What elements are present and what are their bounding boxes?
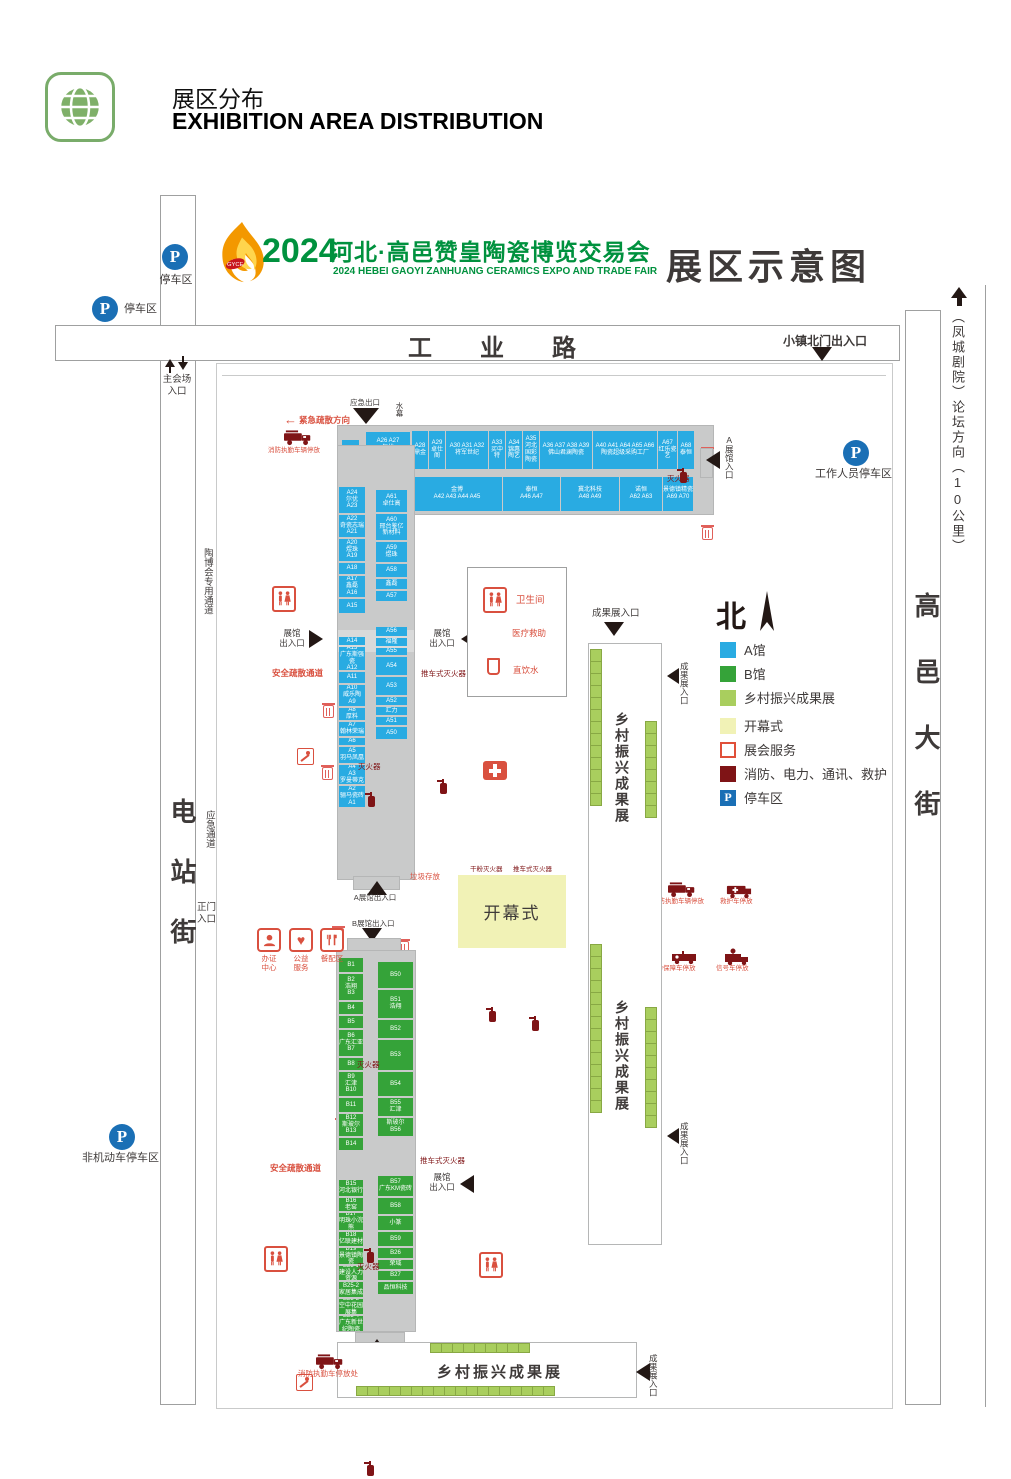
hall-a-booth: A60 邢台鉴亿 新材料 (376, 514, 407, 540)
hall-a-booth: A24 尔优 A23 (339, 487, 365, 513)
evacuation-route-label: 安全疏散通道 (272, 668, 323, 678)
hall-a-left-column: A24 尔优 A23A22 奇瓷志瑞 A21A20 煜珠 A19A18A17 鑫… (339, 487, 365, 807)
trash-storage-label: 垃圾存放 (410, 872, 440, 881)
two-way-arrows-icon (165, 356, 188, 373)
legend-label: 消防、电力、通讯、救护 (744, 764, 887, 783)
road-intersection-patch (161, 327, 194, 359)
achievement-cells-bottom-bottom (357, 1386, 555, 1396)
hall-b-booth: B4 (339, 1002, 363, 1014)
hall-exit-arrow-icon (309, 630, 326, 648)
hall-a-booth: A54 (376, 657, 407, 675)
toilet-icon (479, 1252, 503, 1278)
trash-icon (702, 527, 713, 540)
hall-a-top-row2: 金博 A42 A43 A44 A45泰恒 A46 A47冀北科技 A48 A49… (412, 477, 693, 511)
extinguisher-label: 灭火器 (357, 1060, 380, 1069)
hall-a-booth: A67 红乐瓷艺 (658, 431, 677, 469)
street-label-dianzhan: 电站街 (164, 798, 201, 978)
hall-b-booth: 品恒科技 (378, 1282, 413, 1294)
hall-a-gate-label: A展馆出入口 (343, 893, 407, 902)
signal-truck-icon (724, 948, 750, 965)
achievement-cell (543, 1386, 555, 1396)
exhibition-map-page: 展区分布 EXHIBITION AREA DISTRIBUTION GYCE 2… (0, 0, 1011, 1479)
hall-b-booth: B53 (378, 1040, 413, 1070)
banner-year: 2024 (262, 232, 338, 271)
achievement-label-vertical: 乡村振兴成果展 (612, 712, 632, 824)
evacuation-route-label: 安全疏散通道 (270, 1163, 321, 1173)
hall-b-booth: B2 浩翔 B3 (339, 974, 363, 1000)
achievement-cell (645, 805, 657, 818)
evacuation-exit-icon (297, 748, 314, 765)
globe-logo-icon (45, 72, 115, 142)
hall-a-booth: A30 A31 A32 将军世纪 (446, 431, 488, 469)
parking-label: 停车区 (153, 274, 199, 288)
hall-a-booth: A5 羽马凤凰 (339, 747, 365, 763)
achievement-label-vertical: 乡村振兴成果展 (612, 1000, 632, 1112)
first-aid-icon (483, 761, 507, 780)
toilet-icon (272, 586, 296, 612)
evacuation-direction-label: 紧急疏散方向 (299, 415, 350, 425)
hall-b-booth: B51 浩翔 (378, 990, 413, 1018)
hall-a-booth: 金博 A42 A43 A44 A45 (412, 477, 502, 511)
hall-a-booth: A36 A37 A38 A39 佛山君澜陶瓷 (540, 431, 592, 469)
fire-truck-icon (284, 428, 314, 446)
extinguisher-icon (367, 1465, 374, 1476)
achievement-cells-upper-right (646, 722, 657, 818)
hall-b-booth: B52 (378, 1020, 413, 1038)
legend-item-achievement: 乡村振兴成果展 (720, 688, 835, 707)
hall-a-booth: A50 (376, 727, 407, 739)
achievement-entrance-label: 成果展入口 (679, 662, 689, 705)
nonmotor-parking-icon: P (109, 1124, 135, 1150)
extinguisher-icon (368, 796, 375, 807)
fire-truck-icon (316, 1352, 346, 1370)
hall-b-booth: B25-2 家居集成 (339, 1282, 363, 1297)
hall-b-booth: B18 亿联建材 (339, 1232, 363, 1246)
achievement-entrance-label: 成果展入口 (679, 1122, 689, 1165)
north-blade-icon (757, 591, 775, 631)
hall-a-entrance-label: A展馆入口 (724, 435, 734, 479)
hall-a-booth: A61 卓仕高 (376, 490, 407, 512)
parking-label: 停车区 (124, 303, 157, 317)
legend-swatch-fire (720, 766, 736, 782)
dining-area-label: 餐配区 (316, 954, 348, 963)
hall-a-top-row1: A28 鼎金A29 卓仕阁A30 A31 A32 将军世纪A33 买中特A34 … (412, 431, 694, 469)
achievement-entrance-label: 成果展入口 (648, 1354, 658, 1397)
hall-b-booth: B17 明珠小浣熊 (339, 1213, 363, 1230)
hall-b-booth: B9 汇津 B10 (339, 1072, 363, 1096)
service-center-label: 办证 中心 (255, 954, 283, 972)
hall-a-booth: A11 (339, 672, 365, 683)
hall-a-booth: 福隆 (376, 638, 407, 646)
fire-truck-icon (668, 880, 698, 898)
legend-item-service: 展会服务 (720, 740, 796, 759)
hall-b-booth: B25-4 广东新世纪陶瓷 (339, 1316, 363, 1331)
hall-a-booth: A14 (339, 637, 365, 645)
signal-truck-parking-label: 信号车停放 (716, 965, 749, 972)
service-center-icon (257, 928, 281, 952)
parking-icon: P (92, 296, 118, 322)
hall-b-booth: B26 (378, 1248, 413, 1258)
hall-exit-label: 展馆 出入口 (426, 628, 458, 648)
theater-direction-label: （凤城剧院）论坛方向（10公里） (948, 310, 967, 554)
achievement-entrance-label: 成果展入口 (592, 608, 640, 620)
hall-a-booth: A52 (376, 697, 407, 705)
cart-extinguisher-icon (532, 1020, 539, 1031)
legend-swatch-achievement (720, 690, 736, 706)
hall-a-booth: A58 (376, 564, 407, 577)
achievement-cells-lower-left (591, 945, 602, 1113)
public-service-label: 公益 服务 (287, 954, 315, 972)
power-truck-icon (672, 948, 698, 964)
banner-title: 河北·高邑赞皇陶瓷博览交易会 (330, 233, 651, 267)
drinking-water-label: 直饮水 (513, 665, 539, 675)
legend-swatch-hall-b (720, 666, 736, 682)
opening-ceremony-area: 开幕式 (458, 875, 566, 948)
medical-label: 医疗救助 (512, 628, 546, 638)
achievement-entrance-arrow-icon (604, 622, 624, 639)
hall-a-booth (339, 615, 365, 635)
drinking-water-icon (487, 658, 500, 675)
legend-swatch-hall-a (720, 642, 736, 658)
road-gaoyi-street (905, 310, 941, 1405)
hall-a-booth: A18 (339, 563, 365, 574)
hall-a-booth: A35 河北国彩陶瓷 (523, 431, 539, 469)
banner-subtitle: 2024 HEBEI GAOYI ZANHUANG CERAMICS EXPO … (333, 266, 657, 277)
achievement-entrance-arrow-icon (664, 1128, 679, 1144)
toilet-icon (264, 1246, 288, 1272)
legend-item-opening: 开幕式 (720, 716, 783, 735)
hall-a-booth: A29 卓仕阁 (429, 431, 445, 469)
achievement-cells-bottom-top (431, 1343, 530, 1353)
hall-a-booth: A53 (376, 677, 407, 695)
north-gate-arrow-icon (812, 347, 832, 364)
hall-a-booth: A40 A41 A64 A65 A66 陶瓷超级采购工厂 (593, 431, 657, 469)
hall-a-booth: A7 翰林荣瑞 (339, 722, 365, 736)
parking-icon: P (162, 244, 188, 270)
hall-a-booth: A57 (376, 591, 407, 601)
hall-b-booth (339, 1152, 363, 1178)
staff-parking-label: 工作人员停车区 (815, 468, 892, 482)
hall-b-booth: B27 (378, 1271, 413, 1280)
hall-b-right-column: B50B51 浩翔B52B53B54B55 汇津斯玻尔 B56B57 广东KM瓷… (378, 962, 413, 1294)
hall-a-booth: A20 煜珠 A19 (339, 539, 365, 561)
hall-b-booth (378, 1138, 413, 1174)
legend-label: 停车区 (744, 788, 783, 807)
water-curtain-label: 水幕 (395, 402, 404, 417)
hall-a-booth: 诺恒 A62 A63 (620, 477, 662, 511)
hall-a-booth: A56 (376, 627, 407, 636)
legend-item-hall-a: A馆 (720, 640, 766, 659)
ambulance-parking-label: 救护车停放 (720, 898, 753, 905)
hall-a-booth: A55 (376, 648, 407, 655)
hall-a-entrance-arrow-icon (703, 451, 720, 469)
site-inner-fence (222, 375, 886, 376)
legend-swatch-opening (720, 718, 736, 734)
hall-a-booth: A8 厚料 (339, 708, 365, 720)
powder-extinguisher-icon (489, 1011, 496, 1022)
ambulance-icon (726, 882, 752, 898)
legend-label: B馆 (744, 664, 766, 683)
hall-exit-arrow-icon (457, 1175, 474, 1193)
hall-b-booth: B16 老窑 (339, 1198, 363, 1211)
extinguisher-label: 灭火器 (357, 1262, 380, 1271)
hall-a-booth: A10 威乐陶 A9 (339, 685, 365, 706)
hall-b-booth: B12 斯玻尔 B13 (339, 1114, 363, 1136)
cart-extinguisher-icon (440, 783, 447, 794)
hall-b-booth: 荣域 (378, 1260, 413, 1269)
toilet-icon (483, 587, 507, 613)
hall-b-booth: B58 (378, 1198, 413, 1214)
hall-a-right-column: A61 卓仕高A60 邢台鉴亿 新材料A59 煜珠A58鑫磊A57A56福隆A5… (376, 490, 407, 739)
achievement-cells-lower-right (646, 1008, 657, 1128)
main-venue-entrance-label: 主会场 入口 (154, 374, 200, 398)
fire-truck-spot-label: 消防执勤车停放处 (298, 1369, 358, 1378)
hall-b-gate-label: B展馆出入口 (352, 919, 395, 928)
legend-label: 展会服务 (744, 740, 796, 759)
north-label: 北 (716, 592, 746, 636)
trash-icon (323, 705, 334, 718)
map-right-boundary (985, 285, 986, 1407)
extinguisher-label: 灭火器 (358, 762, 381, 771)
north-direction-arrow-icon (951, 284, 967, 306)
hall-a-booth: A13 广东斯强瓷 A12 (339, 647, 365, 670)
achievement-cell (645, 1115, 657, 1128)
achievement-label-bottom: 乡村振兴成果展 (437, 1361, 563, 1382)
cart-extinguisher-label: 推车式灭火器 (421, 669, 466, 678)
emergency-channel-label: 应急通道 (203, 810, 215, 848)
hall-b-booth: B57 广东KM瓷砖 (378, 1176, 413, 1196)
hall-b-booth: B14 (339, 1138, 363, 1150)
hall-b-left-column: B1B2 浩翔 B3B4B5B6 广东汇亚 B7B8B9 汇津 B10B11B1… (339, 958, 363, 1331)
legend-item-parking: P 停车区 (720, 788, 783, 807)
hall-b-booth: B6 广东汇亚 B7 (339, 1030, 363, 1056)
achievement-cell (518, 1343, 530, 1353)
hall-a-booth: 冀北科技 A48 A49 (561, 477, 619, 511)
hall-a-booth: A2 骊马瓷砖 A1 (339, 786, 365, 807)
cart-extinguisher-label: 推车式灭火器 (513, 866, 552, 873)
hall-b-booth: B55 汇津 (378, 1098, 413, 1116)
legend-swatch-parking: P (720, 790, 736, 806)
staff-parking-icon: P (843, 440, 869, 466)
achievement-cells-upper-left (591, 650, 602, 806)
nonmotor-parking-label: 非机动车停车区 (82, 1152, 159, 1166)
hall-a-booth: A68 泰恒 (678, 431, 694, 469)
hall-a-booth: A59 煜珠 (376, 542, 407, 562)
hall-exit-label: 展馆 出入口 (426, 1172, 458, 1192)
hall-b-booth: 小篆 (378, 1216, 413, 1230)
trash-icon (322, 767, 333, 780)
evacuation-arrow-icon: ← (284, 412, 297, 427)
legend-label: A馆 (744, 640, 766, 659)
logo-acronym: GYCE (227, 262, 244, 268)
hall-a-booth: A33 买中特 (489, 431, 505, 469)
toilet-label: 卫生间 (516, 595, 545, 607)
hall-a-booth: A6 (339, 738, 365, 745)
hall-a-booth (376, 603, 407, 625)
page-title-en: EXHIBITION AREA DISTRIBUTION (172, 108, 543, 135)
hall-b-booth: B25-3 空中花园展集 (339, 1299, 363, 1314)
legend-label: 乡村振兴成果展 (744, 688, 835, 707)
main-gate-label: 正门 入口 (197, 902, 216, 926)
map-title: 展区示意图 (666, 238, 871, 290)
hall-b-booth: B5 (339, 1016, 363, 1028)
hall-b-booth: B15 河北银行 (339, 1180, 363, 1196)
achievement-cell (590, 1100, 602, 1113)
legend-swatch-service (720, 742, 736, 758)
achievement-cell (590, 793, 602, 806)
fire-truck-parking-label: 消防执勤车辆停放 (268, 447, 320, 454)
hall-b-booth: B50 (378, 962, 413, 988)
hall-a-booth: 汇力 (376, 707, 407, 715)
hall-a-booth: A17 鑫磊 A16 (339, 576, 365, 597)
powder-extinguisher-label: 干粉灭火器 (470, 866, 503, 873)
hall-exit-label: 展馆 出入口 (276, 628, 308, 648)
hall-b-booth: B54 (378, 1072, 413, 1096)
globe-icon (56, 83, 104, 131)
street-label-industrial: 工业路 (408, 328, 624, 363)
legend-label: 开幕式 (744, 716, 783, 735)
hall-b-booth: B59 (378, 1232, 413, 1246)
legend-item-fire: 消防、电力、通讯、救护 (720, 764, 887, 783)
hall-b-booth: B11 (339, 1098, 363, 1112)
cart-extinguisher-label: 推车式灭火器 (420, 1156, 465, 1165)
hall-a-booth: A51 (376, 717, 407, 725)
hall-b-booth: 斯玻尔 B56 (378, 1118, 413, 1136)
public-service-heart-icon: ♥ (289, 928, 313, 952)
hall-a-booth: 泰恒 A46 A47 (503, 477, 560, 511)
extinguisher-label: 灭火器 (667, 474, 690, 483)
achievement-entrance-arrow-icon (664, 668, 679, 684)
hall-a-booth: A15 (339, 599, 365, 613)
hall-a-booth: 鑫磊 (376, 579, 407, 589)
street-label-gaoyi: 高邑大街 (908, 592, 945, 856)
hall-a-booth: A22 奇瓷志瑞 A21 (339, 515, 365, 537)
ceramic-channel-label: 陶博会专用通道 (201, 548, 213, 615)
dining-area-icon (320, 928, 344, 952)
hall-a-booth: A34 锦惠陶艺 (506, 431, 522, 469)
emergency-exit-label: 应急出口 (350, 398, 380, 407)
emergency-exit-arrow-icon (353, 408, 379, 427)
legend-item-hall-b: B馆 (720, 664, 766, 683)
